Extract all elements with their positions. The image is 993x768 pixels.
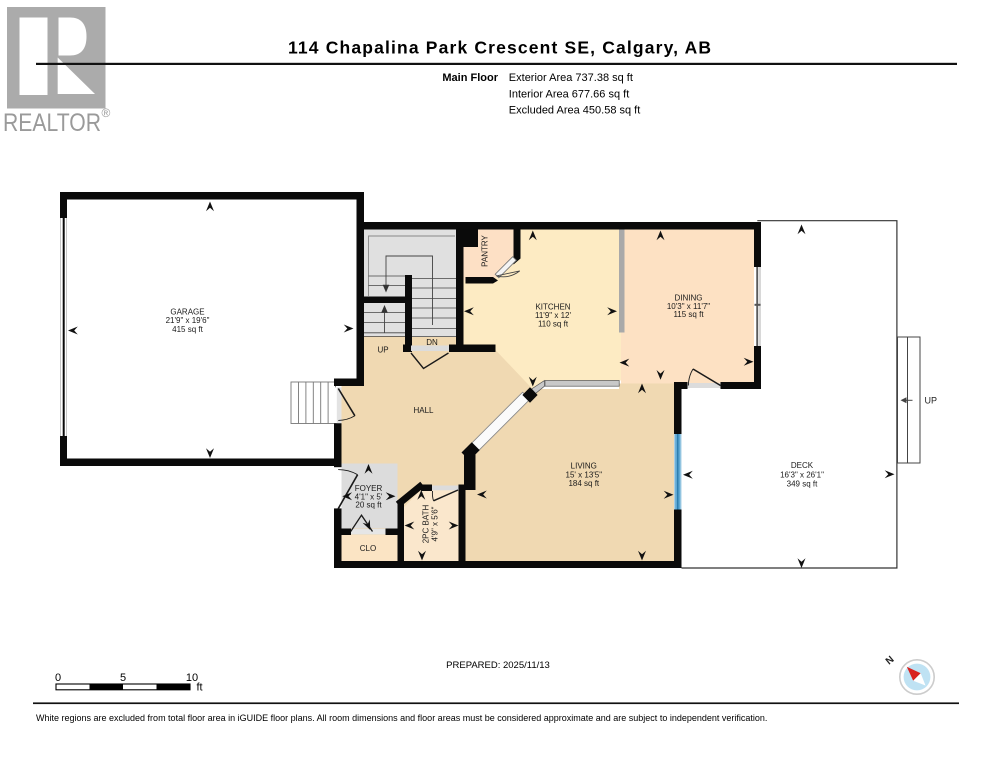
svg-text:Interior Area 677.66 sq ft: Interior Area 677.66 sq ft	[509, 88, 629, 100]
svg-text:REALTOR: REALTOR	[3, 109, 101, 137]
svg-text:GARAGE: GARAGE	[170, 308, 204, 317]
svg-text:415 sq ft: 415 sq ft	[172, 325, 203, 334]
svg-text:15' x 13'5": 15' x 13'5"	[566, 470, 603, 479]
svg-text:115 sq ft: 115 sq ft	[673, 310, 704, 319]
svg-text:2PC BATH: 2PC BATH	[421, 505, 430, 544]
svg-text:UP: UP	[925, 396, 938, 406]
svg-text:5: 5	[120, 672, 126, 684]
svg-text:16'3" x 26'1": 16'3" x 26'1"	[780, 470, 824, 479]
svg-text:Excluded Area 450.58 sq ft: Excluded Area 450.58 sq ft	[509, 105, 640, 117]
svg-text:DN: DN	[426, 338, 438, 347]
svg-text:White regions are excluded fro: White regions are excluded from total fl…	[36, 713, 767, 723]
svg-text:349 sq ft: 349 sq ft	[787, 479, 818, 488]
svg-text:HALL: HALL	[413, 406, 434, 415]
svg-text:ft: ft	[197, 682, 203, 694]
svg-text:PANTRY: PANTRY	[481, 234, 490, 266]
svg-text:Main Floor: Main Floor	[442, 72, 498, 84]
svg-text:PREPARED: 2025/11/13: PREPARED: 2025/11/13	[446, 660, 550, 671]
svg-text:184 sq ft: 184 sq ft	[568, 479, 599, 488]
svg-text:UP: UP	[377, 345, 388, 354]
svg-text:110 sq ft: 110 sq ft	[538, 319, 569, 328]
svg-text:DECK: DECK	[791, 461, 814, 470]
svg-text:LIVING: LIVING	[571, 461, 597, 470]
svg-text:®: ®	[102, 106, 111, 120]
svg-text:0: 0	[55, 672, 61, 684]
svg-text:Exterior Area 737.38 sq ft: Exterior Area 737.38 sq ft	[509, 72, 633, 84]
svg-text:4'9" x 5'6": 4'9" x 5'6"	[430, 506, 439, 541]
svg-text:20 sq ft: 20 sq ft	[355, 501, 382, 510]
svg-text:CLO: CLO	[360, 544, 376, 553]
svg-text:114 Chapalina Park Crescent SE: 114 Chapalina Park Crescent SE, Calgary,…	[288, 38, 711, 58]
